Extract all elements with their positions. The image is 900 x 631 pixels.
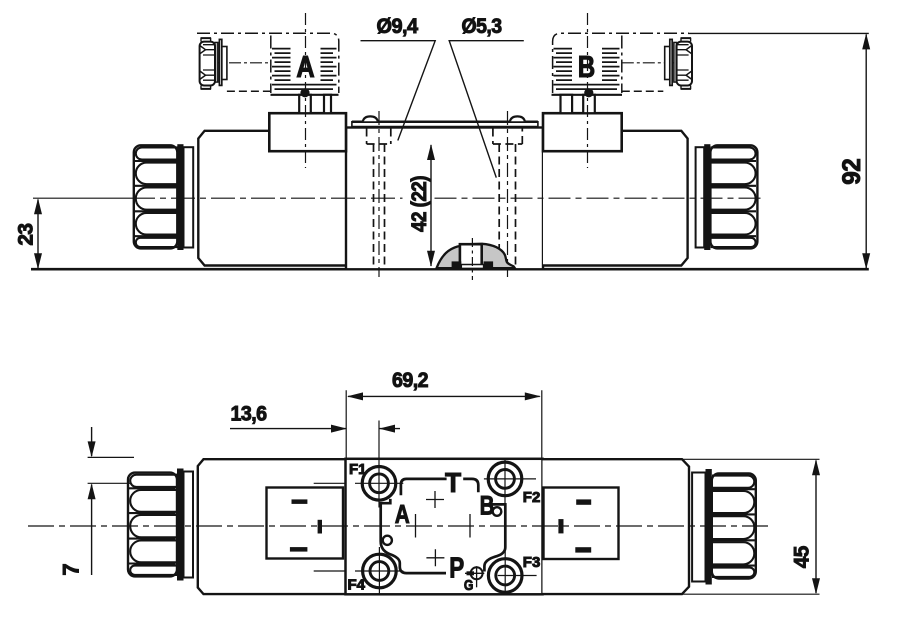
svg-text:F1: F1 bbox=[349, 461, 367, 478]
svg-text:69,2: 69,2 bbox=[392, 369, 428, 392]
svg-text:B: B bbox=[578, 49, 596, 84]
svg-text:F2: F2 bbox=[523, 489, 541, 506]
svg-text:B: B bbox=[480, 490, 495, 520]
svg-text:A: A bbox=[395, 499, 410, 529]
svg-text:T: T bbox=[445, 467, 461, 498]
svg-text:Ø9,4: Ø9,4 bbox=[377, 15, 419, 38]
svg-text:13,6: 13,6 bbox=[231, 403, 267, 426]
svg-text:P: P bbox=[449, 553, 464, 585]
svg-text:7: 7 bbox=[59, 563, 84, 575]
svg-text:92: 92 bbox=[838, 159, 866, 185]
svg-text:Ø5,3: Ø5,3 bbox=[462, 15, 502, 38]
svg-text:45: 45 bbox=[791, 545, 814, 568]
svg-text:42 (22): 42 (22) bbox=[408, 176, 431, 232]
svg-text:F3: F3 bbox=[523, 554, 541, 571]
svg-text:F4: F4 bbox=[348, 577, 366, 594]
svg-text:G: G bbox=[464, 577, 474, 594]
svg-text:23: 23 bbox=[14, 224, 37, 246]
